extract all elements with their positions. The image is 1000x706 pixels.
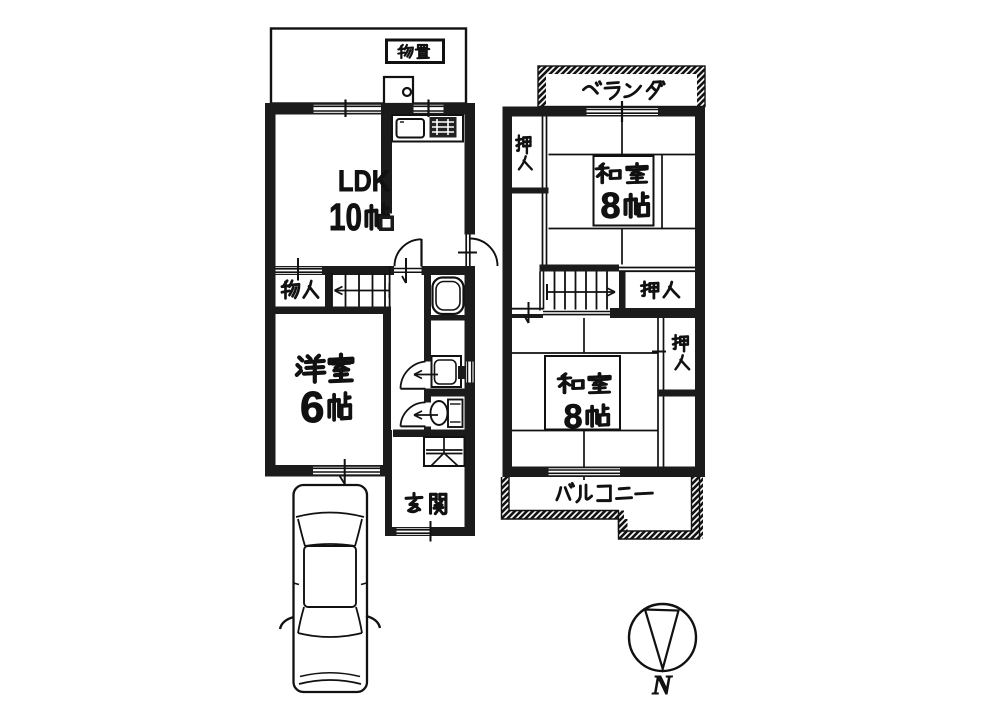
svg-text:6: 6 — [300, 383, 324, 432]
svg-text:N: N — [651, 670, 673, 700]
svg-text:8: 8 — [564, 398, 583, 436]
svg-text:LDK: LDK — [338, 165, 390, 198]
svg-text:8: 8 — [600, 185, 620, 226]
svg-text:10: 10 — [329, 197, 362, 239]
